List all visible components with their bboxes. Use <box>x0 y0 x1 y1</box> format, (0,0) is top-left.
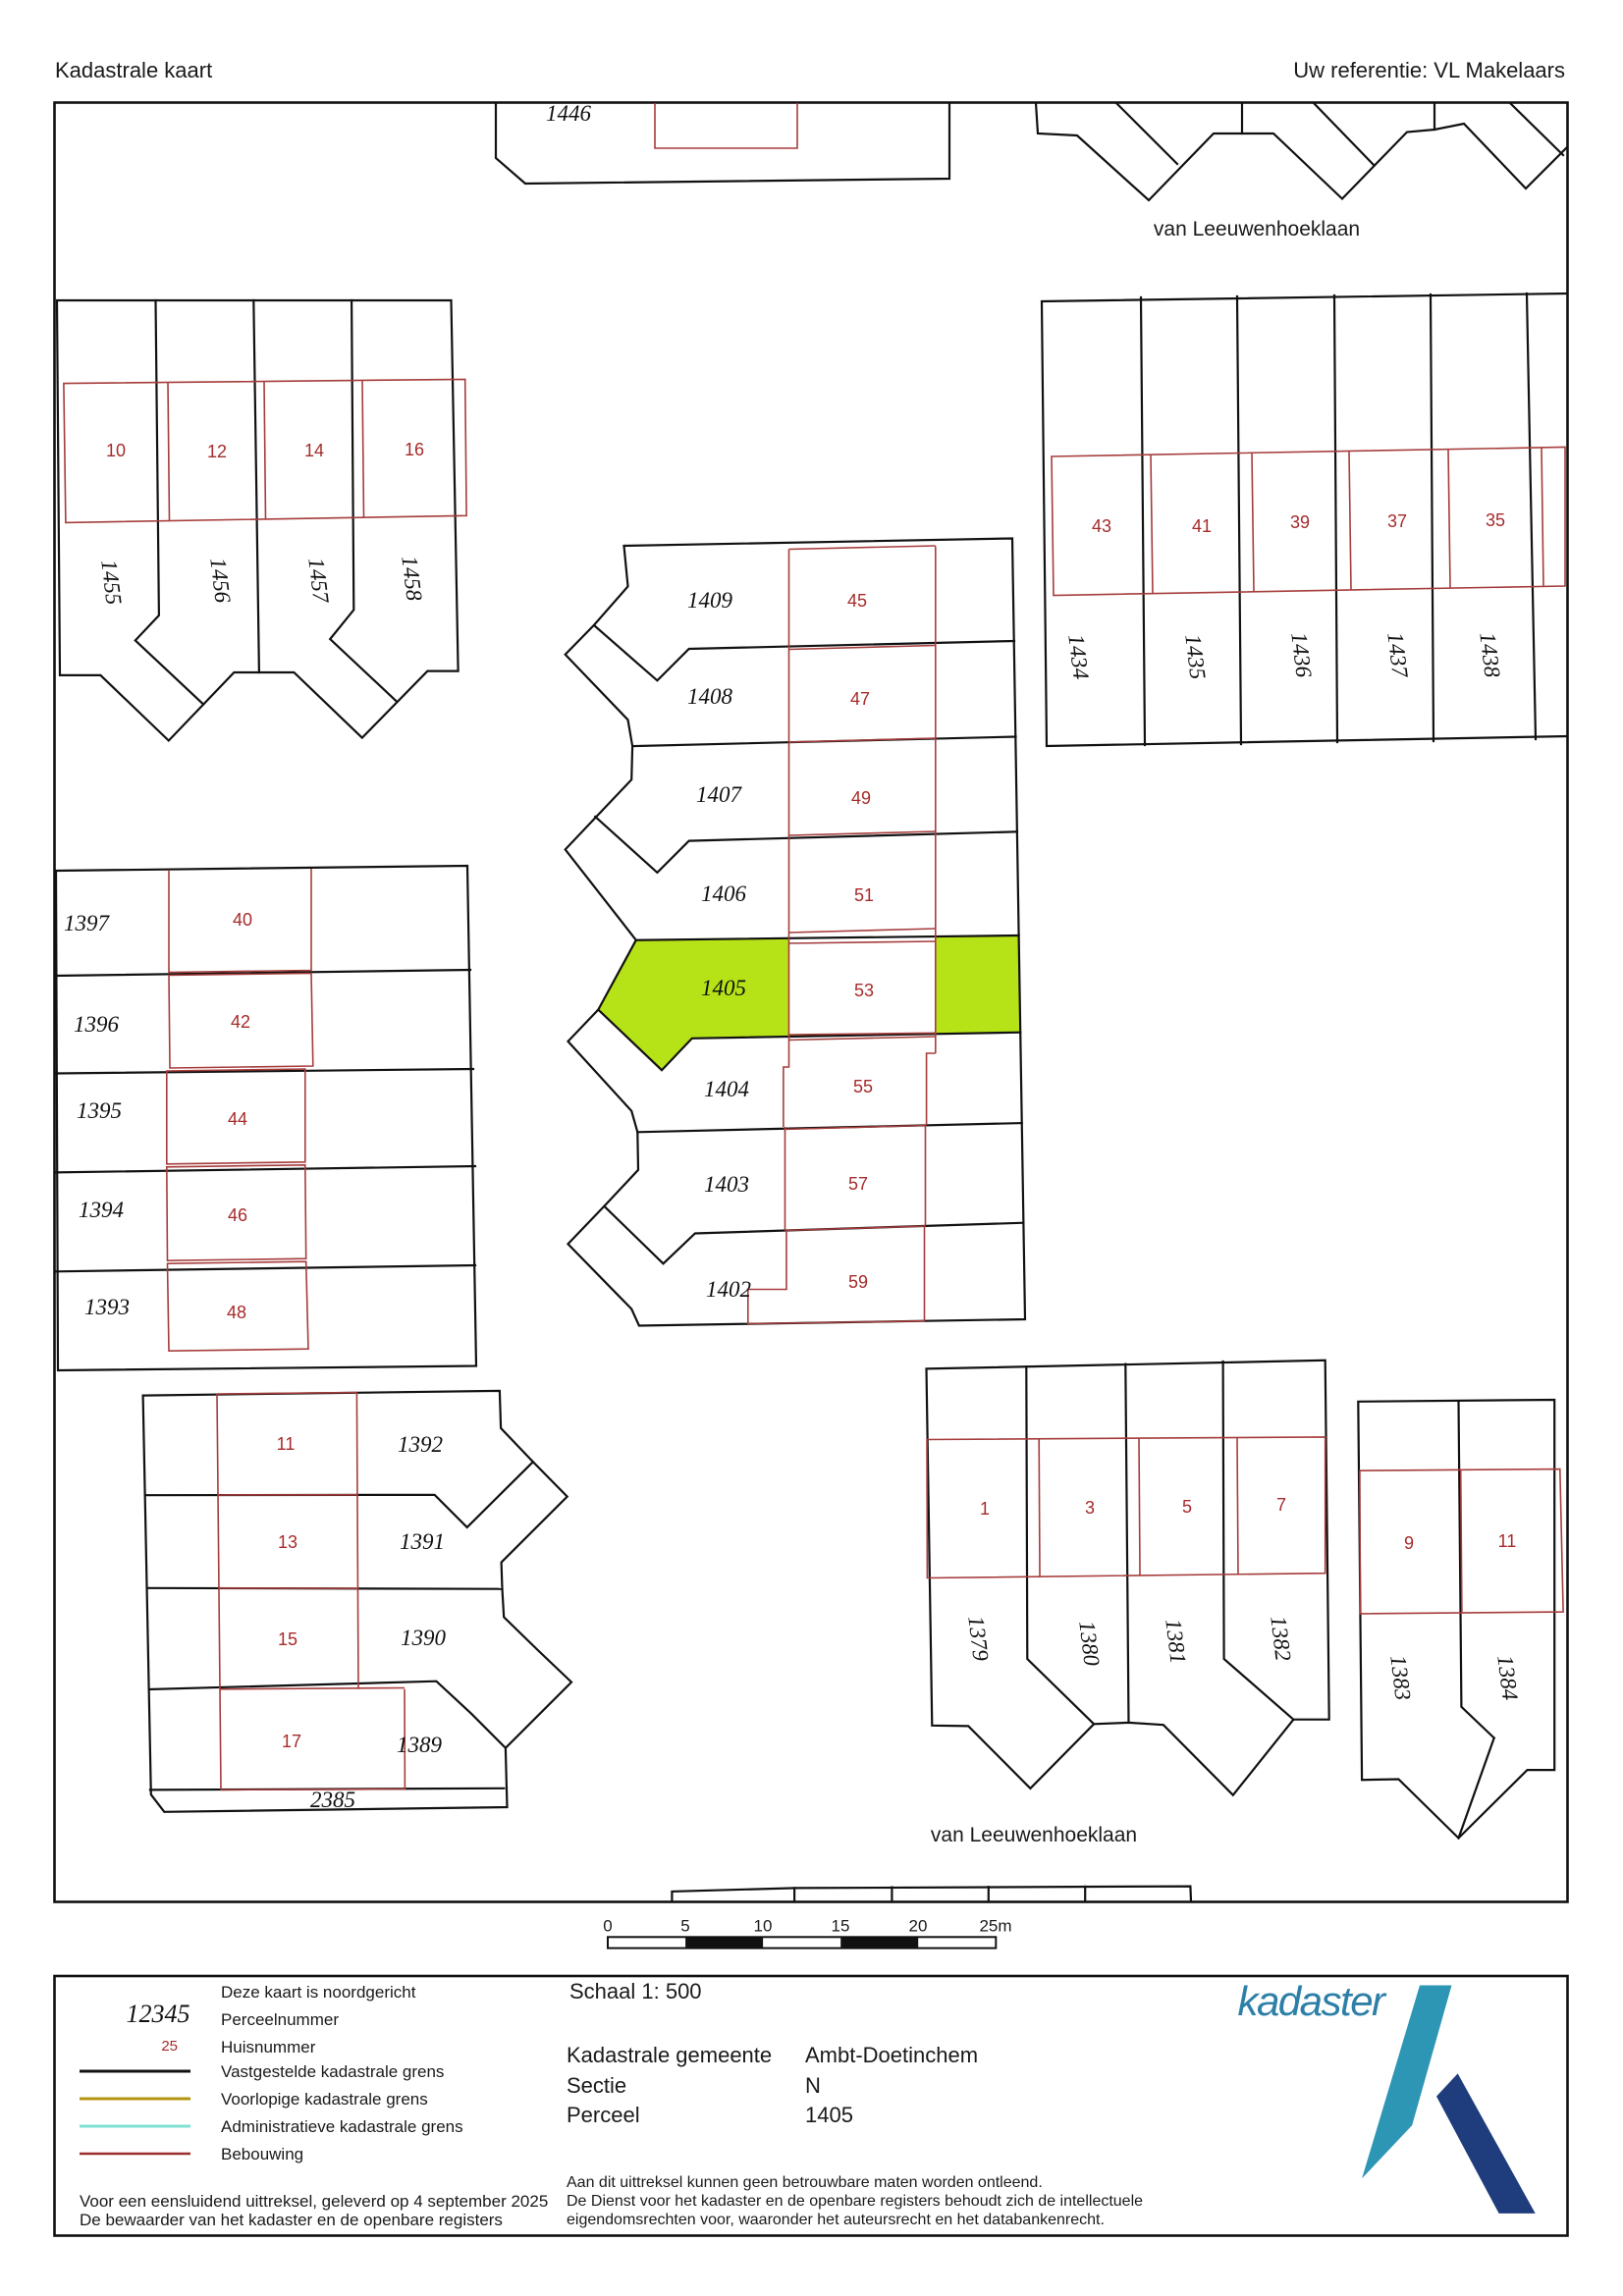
svg-text:Uw referentie: VL Makelaars: Uw referentie: VL Makelaars <box>1293 58 1565 82</box>
svg-text:48: 48 <box>227 1303 246 1322</box>
svg-text:53: 53 <box>854 981 874 1000</box>
svg-text:15: 15 <box>832 1917 850 1936</box>
svg-text:De Dienst voor het kadaster en: De Dienst voor het kadaster en de openba… <box>567 2193 1143 2210</box>
svg-text:35: 35 <box>1486 510 1505 530</box>
svg-text:10: 10 <box>106 441 126 460</box>
svg-text:11: 11 <box>1498 1531 1517 1551</box>
svg-text:42: 42 <box>231 1012 250 1032</box>
svg-text:1397: 1397 <box>64 911 111 935</box>
svg-text:14: 14 <box>304 441 324 460</box>
svg-text:2385: 2385 <box>310 1788 355 1812</box>
svg-text:1408: 1408 <box>687 684 733 709</box>
svg-text:1409: 1409 <box>687 588 733 613</box>
svg-text:Ambt-Doetinchem: Ambt-Doetinchem <box>805 2043 978 2067</box>
svg-text:1395: 1395 <box>77 1098 122 1123</box>
svg-text:1407: 1407 <box>696 782 743 807</box>
svg-text:Vastgestelde kadastrale grens: Vastgestelde kadastrale grens <box>221 2062 444 2081</box>
svg-text:van Leeuwenhoeklaan: van Leeuwenhoeklaan <box>931 1824 1137 1846</box>
svg-text:Aan dit uittreksel kunnen geen: Aan dit uittreksel kunnen geen betrouwba… <box>567 2174 1043 2191</box>
svg-text:1: 1 <box>980 1499 990 1519</box>
svg-text:Schaal 1: 500: Schaal 1: 500 <box>569 1979 702 2003</box>
svg-text:15: 15 <box>278 1629 298 1649</box>
svg-text:Sectie: Sectie <box>567 2073 626 2098</box>
svg-text:1390: 1390 <box>401 1626 447 1650</box>
svg-text:11: 11 <box>277 1434 296 1454</box>
svg-text:3: 3 <box>1085 1498 1095 1518</box>
svg-text:1406: 1406 <box>701 881 747 906</box>
svg-text:47: 47 <box>850 689 870 709</box>
svg-text:1402: 1402 <box>706 1277 751 1302</box>
svg-text:Perceelnummer: Perceelnummer <box>221 2010 339 2029</box>
svg-text:eigendomsrechten voor, waarond: eigendomsrechten voor, waaronder het aut… <box>567 2212 1105 2228</box>
svg-text:1389: 1389 <box>397 1733 443 1757</box>
svg-text:Bebouwing: Bebouwing <box>221 2145 303 2163</box>
svg-text:51: 51 <box>854 885 874 905</box>
svg-text:Administratieve kadastrale gre: Administratieve kadastrale grens <box>221 2117 463 2136</box>
svg-text:Huisnummer: Huisnummer <box>221 2038 316 2056</box>
svg-text:57: 57 <box>848 1174 868 1194</box>
svg-text:1391: 1391 <box>400 1529 445 1554</box>
svg-text:49: 49 <box>851 788 871 808</box>
svg-text:41: 41 <box>1192 516 1212 536</box>
svg-text:25: 25 <box>161 2038 178 2055</box>
svg-text:13: 13 <box>278 1532 298 1552</box>
svg-text:Perceel: Perceel <box>567 2103 640 2127</box>
svg-text:5: 5 <box>680 1917 689 1936</box>
svg-text:5: 5 <box>1182 1497 1192 1517</box>
svg-text:De bewaarder van het kadaster: De bewaarder van het kadaster en de open… <box>80 2211 503 2229</box>
svg-text:43: 43 <box>1092 516 1111 536</box>
svg-text:37: 37 <box>1387 511 1407 531</box>
svg-text:1403: 1403 <box>704 1172 749 1197</box>
svg-text:Voor een eensluidend uittrekse: Voor een eensluidend uittreksel, gelever… <box>80 2192 548 2211</box>
svg-text:10: 10 <box>754 1917 773 1936</box>
svg-text:40: 40 <box>233 910 252 930</box>
svg-text:1393: 1393 <box>84 1295 130 1319</box>
svg-text:1404: 1404 <box>704 1077 749 1101</box>
svg-text:39: 39 <box>1290 512 1310 532</box>
svg-text:N: N <box>805 2073 821 2098</box>
svg-text:1392: 1392 <box>398 1432 443 1457</box>
svg-text:20: 20 <box>909 1917 928 1936</box>
svg-text:17: 17 <box>282 1732 301 1751</box>
svg-text:45: 45 <box>847 591 867 611</box>
svg-text:Deze kaart is noordgericht: Deze kaart is noordgericht <box>221 1983 416 2002</box>
svg-text:44: 44 <box>228 1109 247 1129</box>
svg-text:1394: 1394 <box>79 1198 124 1222</box>
svg-text:46: 46 <box>228 1205 247 1225</box>
svg-text:van Leeuwenhoeklaan: van Leeuwenhoeklaan <box>1154 218 1360 240</box>
svg-text:12: 12 <box>207 442 227 461</box>
svg-text:Kadastrale gemeente: Kadastrale gemeente <box>567 2043 772 2067</box>
svg-text:1446: 1446 <box>546 101 592 126</box>
svg-text:16: 16 <box>405 440 424 459</box>
svg-text:0: 0 <box>603 1917 612 1936</box>
svg-text:kadaster: kadaster <box>1237 1978 1387 2024</box>
svg-text:12345: 12345 <box>127 2000 190 2028</box>
svg-text:25m: 25m <box>979 1917 1011 1936</box>
svg-text:7: 7 <box>1276 1495 1286 1515</box>
svg-text:1396: 1396 <box>74 1012 120 1037</box>
svg-text:Voorlopige kadastrale grens: Voorlopige kadastrale grens <box>221 2090 428 2109</box>
svg-text:9: 9 <box>1404 1533 1414 1553</box>
svg-text:59: 59 <box>848 1272 868 1292</box>
svg-text:Kadastrale kaart: Kadastrale kaart <box>55 58 212 82</box>
svg-text:55: 55 <box>853 1077 873 1096</box>
svg-text:1405: 1405 <box>805 2103 853 2127</box>
svg-text:1405: 1405 <box>701 976 746 1000</box>
